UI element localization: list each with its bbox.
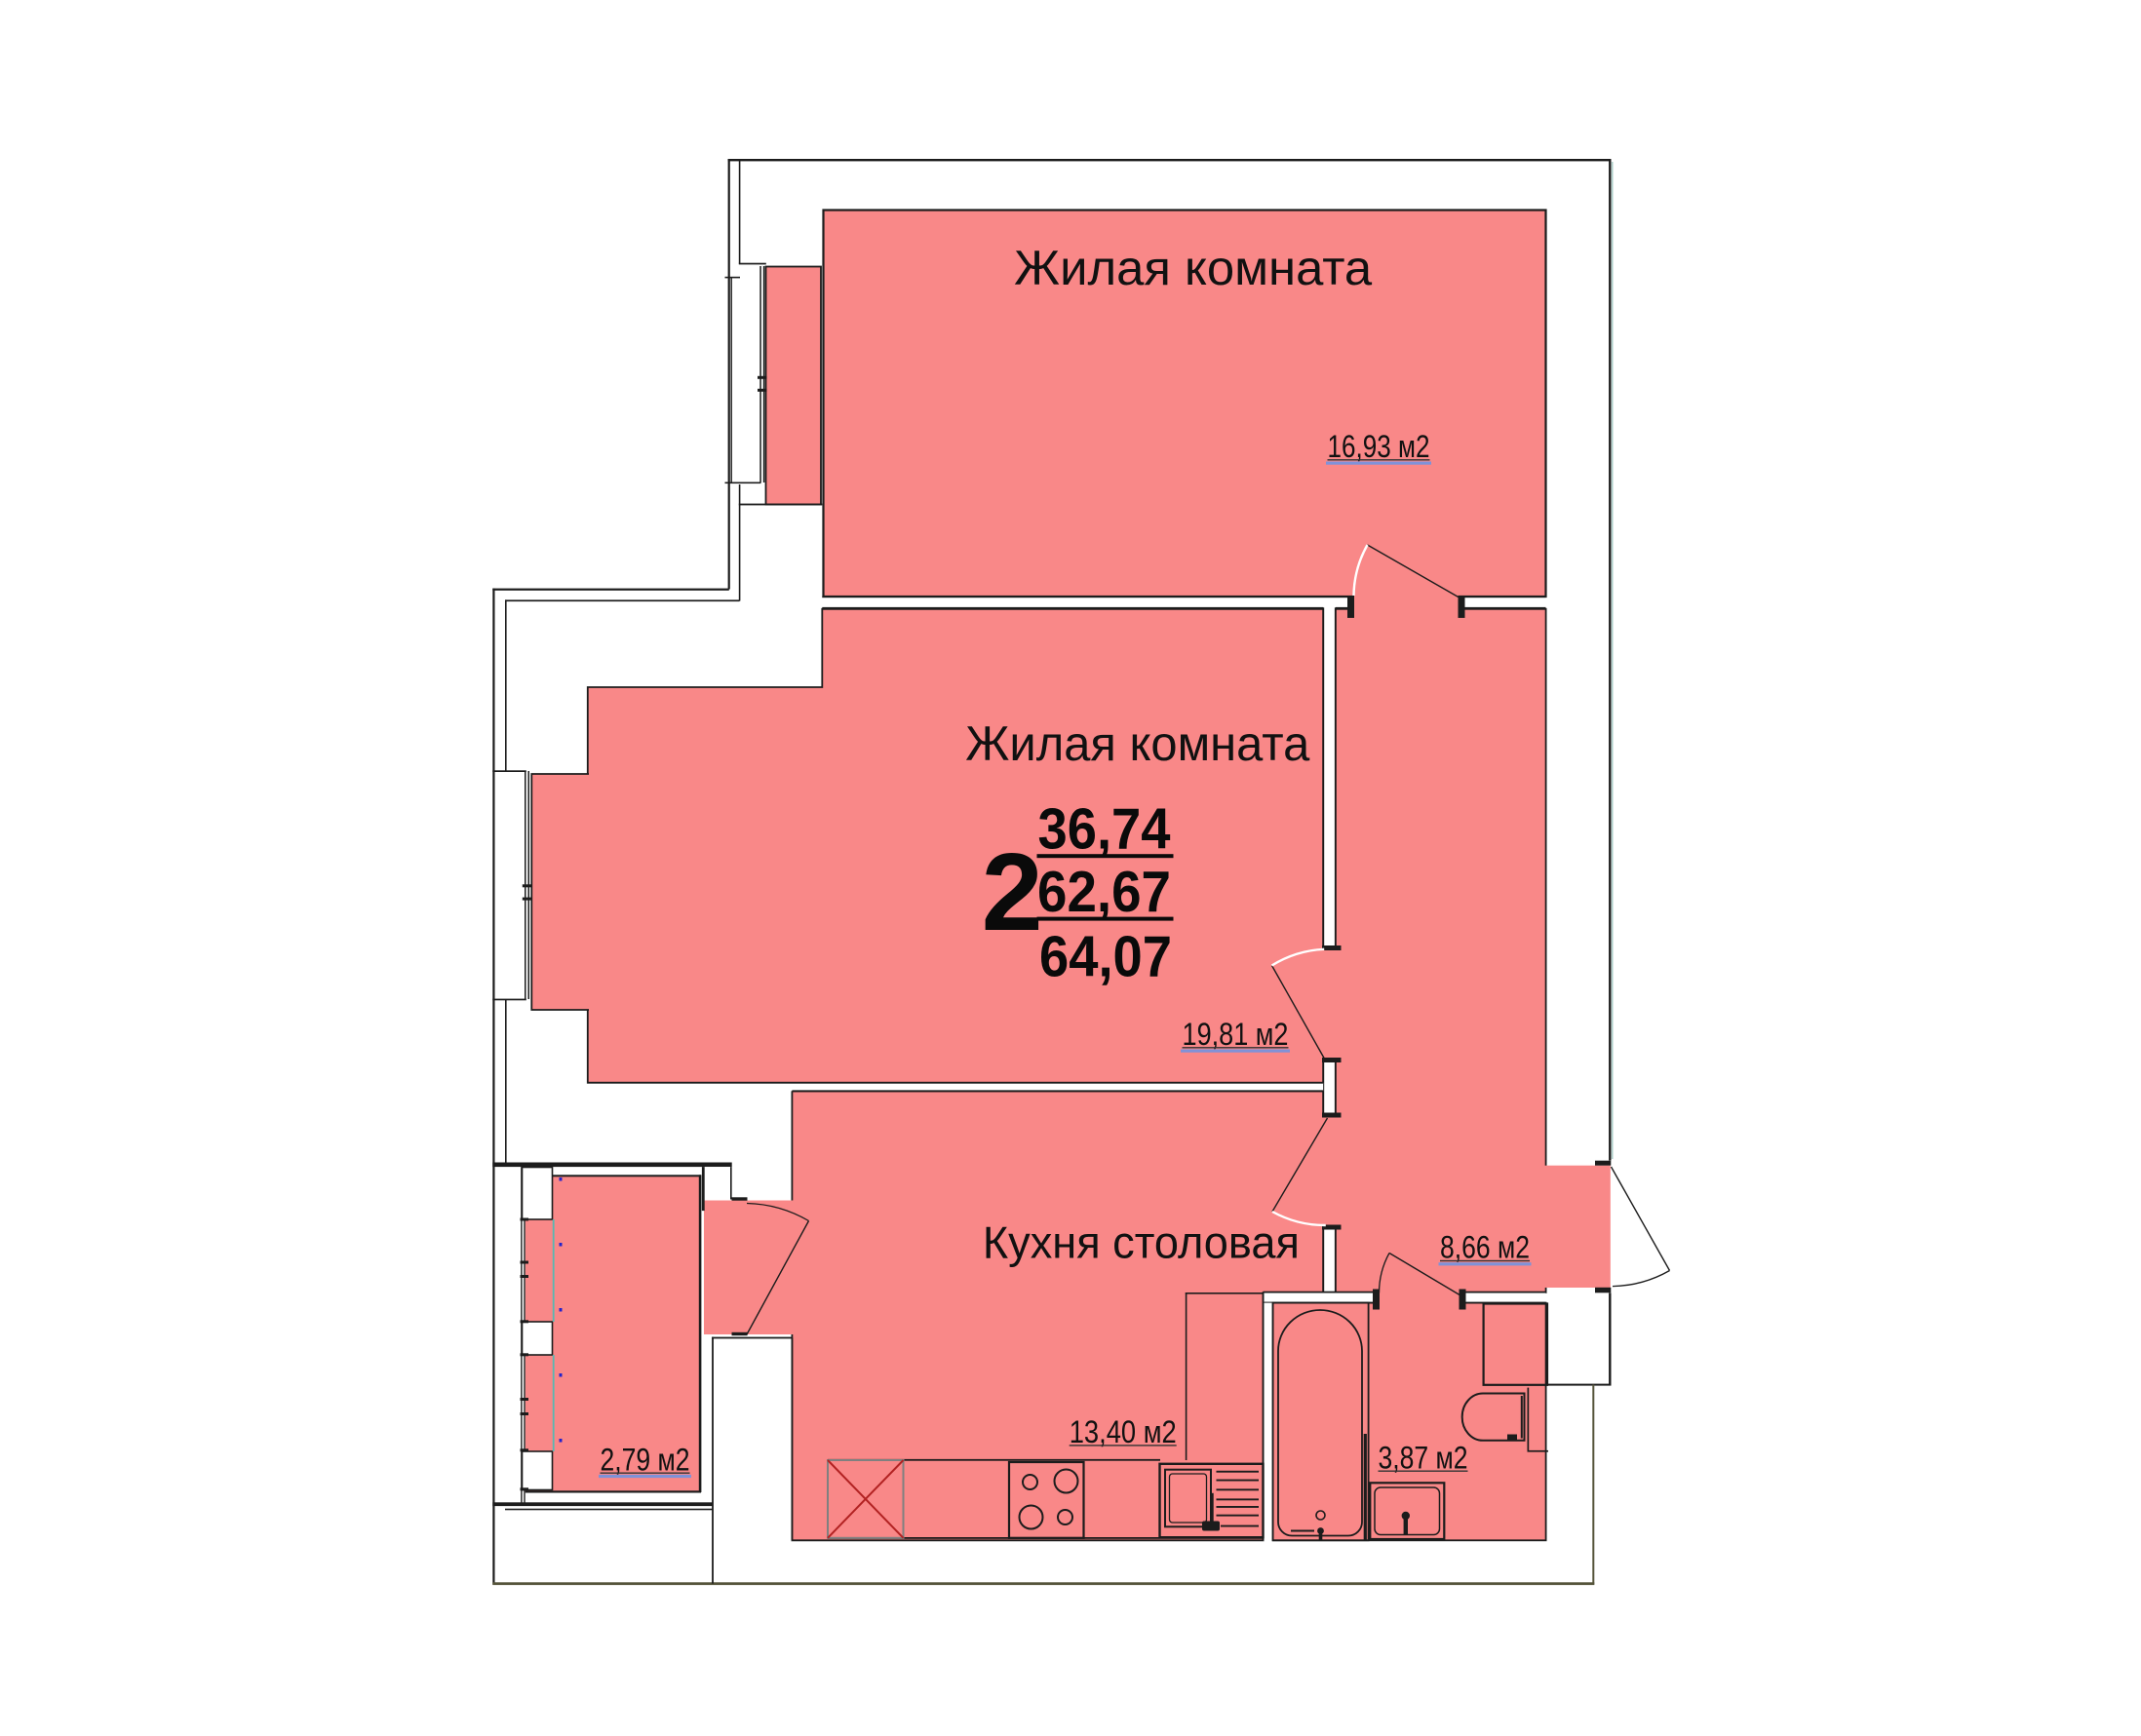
- svg-text:Жилая комната: Жилая комната: [965, 716, 1309, 771]
- svg-text:3,87 м2: 3,87 м2: [1379, 1440, 1468, 1475]
- svg-text:2,79 м2: 2,79 м2: [601, 1442, 690, 1477]
- svg-text:2: 2: [982, 830, 1043, 953]
- svg-text:Жилая комната: Жилая комната: [1014, 241, 1372, 295]
- svg-text:Кухня столовая: Кухня столовая: [983, 1216, 1300, 1267]
- svg-text:16,93 м2: 16,93 м2: [1328, 429, 1430, 464]
- svg-text:36,74: 36,74: [1038, 797, 1171, 862]
- svg-text:13,40 м2: 13,40 м2: [1070, 1414, 1177, 1449]
- svg-text:19,81 м2: 19,81 м2: [1183, 1017, 1289, 1052]
- svg-text:62,67: 62,67: [1037, 860, 1171, 924]
- svg-text:8,66 м2: 8,66 м2: [1440, 1230, 1530, 1265]
- svg-text:64,07: 64,07: [1039, 925, 1172, 989]
